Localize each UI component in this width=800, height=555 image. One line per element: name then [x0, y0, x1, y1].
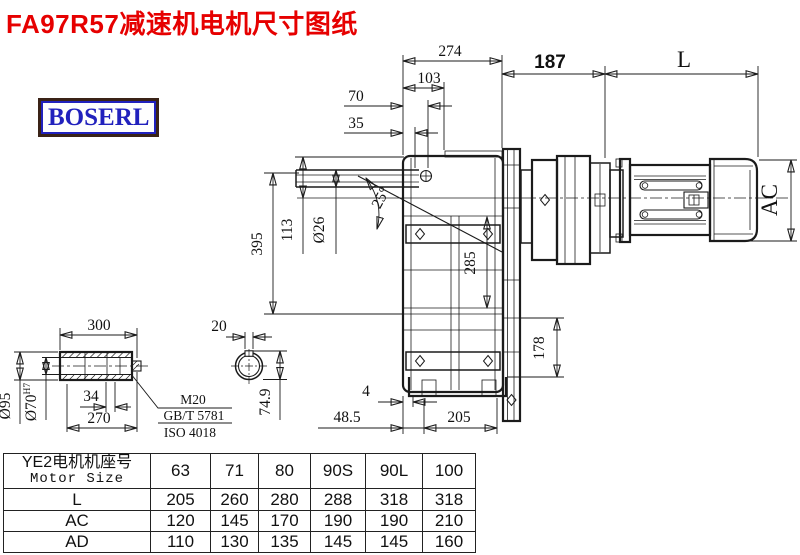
motor-size-table: YE2电机机座号 Motor Size 63 71 80 90S 90L 100…: [3, 453, 476, 553]
table-cell: 190: [366, 511, 423, 532]
table-cell: 160: [423, 532, 476, 553]
dim-178-label: 178: [531, 336, 548, 360]
dim-48-5-label: 48.5: [333, 409, 360, 426]
dim-274-label: 274: [438, 43, 462, 60]
dim-95-label: Ø95: [0, 392, 14, 419]
row-label-AD: AD: [4, 532, 151, 553]
table-cell: 130: [211, 532, 259, 553]
table-cell: 288: [311, 489, 366, 511]
dim-4-label: 4: [362, 383, 370, 400]
motor-frame: [630, 165, 710, 235]
gearbox-outline: [403, 156, 503, 392]
dim-70H7-label: Ø70H7: [23, 383, 40, 422]
dim-26-label: Ø26: [311, 216, 328, 243]
table-cell: 318: [366, 489, 423, 511]
size-col-90s: 90S: [311, 454, 366, 489]
table-cell: 170: [259, 511, 311, 532]
row-label-AC: AC: [4, 511, 151, 532]
dim-L-label: L: [677, 47, 691, 72]
table-cell: 145: [211, 511, 259, 532]
row-label-L: L: [4, 489, 151, 511]
dim-300-label: 300: [87, 317, 111, 334]
note-std2-label: ISO 4018: [164, 425, 216, 440]
table-cell: 145: [311, 532, 366, 553]
dim-103-label: 103: [417, 70, 441, 87]
note-std1-label: GB/T 5781: [164, 408, 225, 423]
dim-205-label: 205: [447, 409, 471, 426]
input-shaft-stub: [296, 170, 419, 187]
motor-size-label-cn: YE2电机机座号: [4, 455, 150, 472]
table-header-cell: YE2电机机座号 Motor Size: [4, 454, 151, 489]
dim-70-label: 70: [348, 88, 364, 105]
shaft-section-view: [231, 349, 267, 384]
table-row-L: L 205 260 280 288 318 318: [4, 489, 476, 511]
size-col-71: 71: [211, 454, 259, 489]
dim-20-label: 20: [211, 318, 227, 335]
dim-34-label: 34: [83, 388, 99, 405]
table-cell: 110: [151, 532, 211, 553]
table-cell: 190: [311, 511, 366, 532]
motor-size-label-en: Motor Size: [4, 472, 150, 487]
dim-113-label: 113: [279, 218, 296, 241]
table-row-AC: AC 120 145 170 190 190 210: [4, 511, 476, 532]
table-header-row: YE2电机机座号 Motor Size 63 71 80 90S 90L 100: [4, 454, 476, 489]
size-col-80: 80: [259, 454, 311, 489]
dim-285-label: 285: [462, 251, 479, 275]
dim-270-label: 270: [87, 410, 111, 427]
dimension-lines-left: 395 113 Ø26 25° 285 178 AC: [249, 157, 797, 377]
table-cell: 205: [151, 489, 211, 511]
terminal-box: [684, 192, 708, 208]
motor-flange: [620, 159, 630, 242]
table-cell: 120: [151, 511, 211, 532]
dim-AC-label: AC: [757, 184, 782, 216]
dim-187-label: 187: [534, 52, 566, 73]
table-cell: 260: [211, 489, 259, 511]
dim-35-label: 35: [348, 115, 364, 132]
table-cell: 210: [423, 511, 476, 532]
helical-stage-r57: [521, 156, 623, 264]
dimension-lines-shaft: 300 Ø95 Ø70H7 34 270 M20 GB/T 5781 ISO 4…: [0, 317, 232, 440]
size-col-90l: 90L: [366, 454, 423, 489]
dim-395-label: 395: [249, 232, 266, 256]
table-cell: 280: [259, 489, 311, 511]
dimension-lines-top: 274 103 70 35 187 L: [344, 43, 758, 168]
note-bolt-label: M20: [180, 392, 206, 407]
dim-74-9-label: 74.9: [257, 388, 274, 415]
hollow-shaft-detail: [52, 352, 148, 380]
table-cell: 135: [259, 532, 311, 553]
table-row-AD: AD 110 130 135 145 145 160: [4, 532, 476, 553]
size-col-63: 63: [151, 454, 211, 489]
table-cell: 318: [423, 489, 476, 511]
size-col-100: 100: [423, 454, 476, 489]
table-cell: 145: [366, 532, 423, 553]
drawing-sheet: FA97R57减速机电机尺寸图纸 BOSERL: [0, 0, 800, 555]
